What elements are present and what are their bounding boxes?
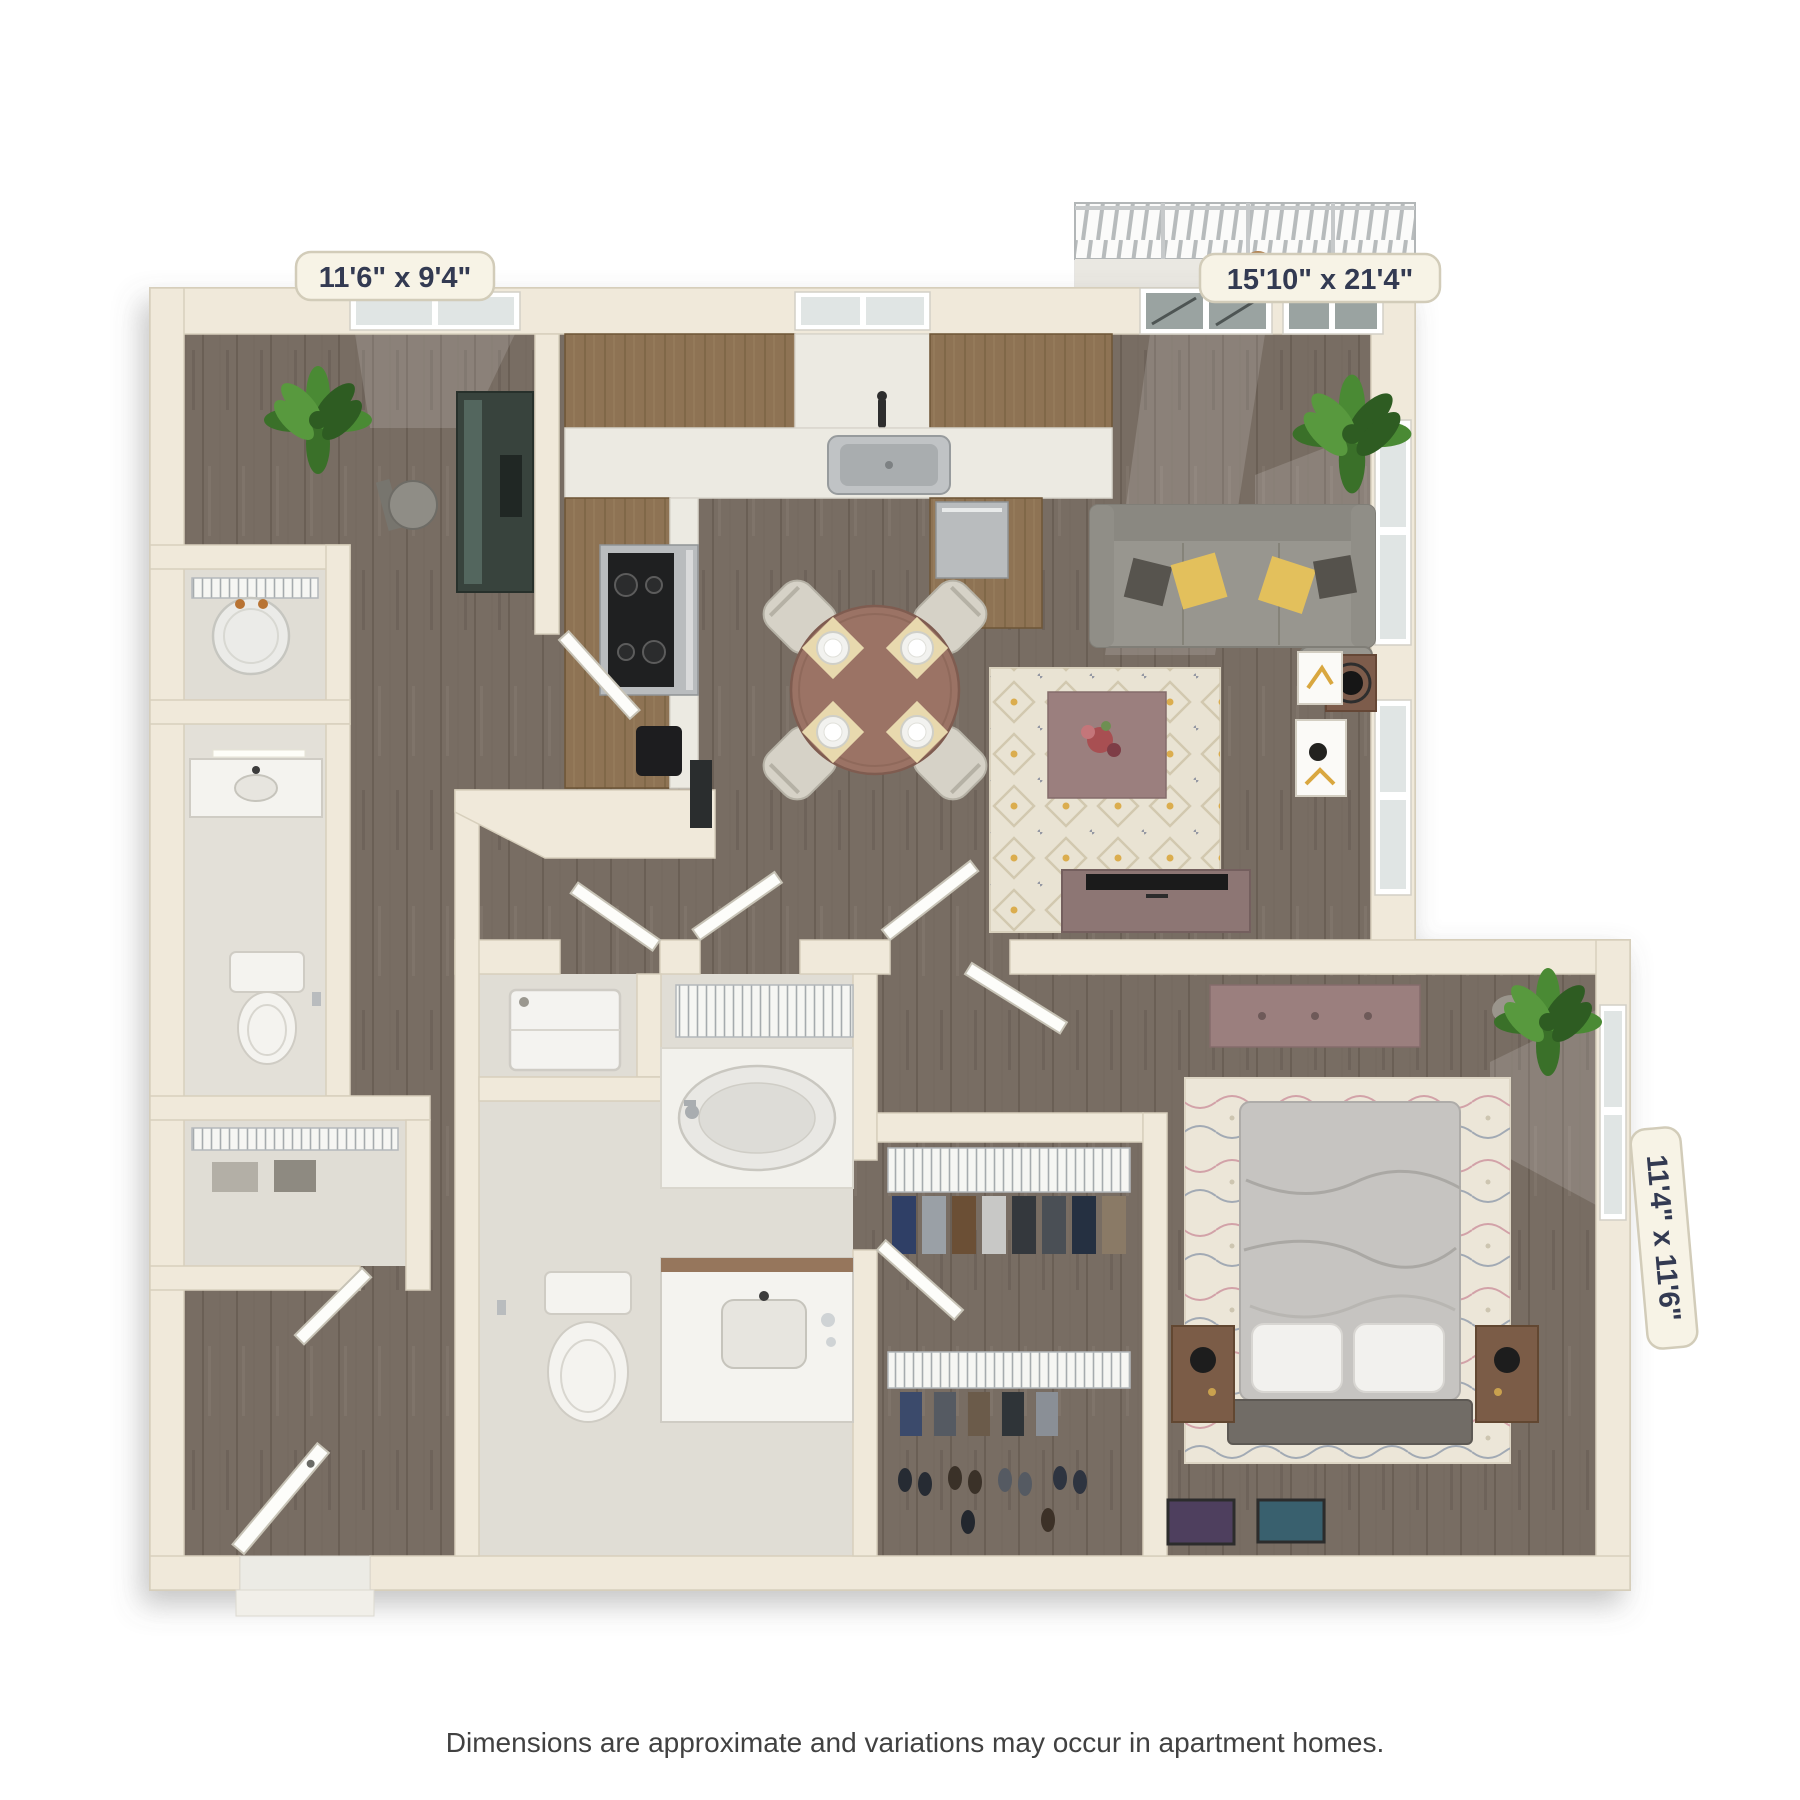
- oven-handle: [686, 550, 693, 690]
- balcony-railing: [1075, 203, 1415, 259]
- bedroom-window: [1600, 1005, 1626, 1220]
- exterior-wall-left: [150, 288, 184, 1590]
- bath2-toilet-tank: [230, 952, 304, 992]
- floor-plan-image: 11'6" x 9'4" 15'10" x 21'4" 11'4" x 11'6…: [0, 0, 1800, 1800]
- bath2-sink: [235, 775, 277, 801]
- exterior-wall-bottom: [150, 1556, 240, 1590]
- copper-pipe: [235, 599, 245, 609]
- dresser-knob: [1364, 1012, 1372, 1020]
- range-stove: [600, 545, 698, 695]
- kitchen-window: [795, 292, 930, 330]
- linen-wire-shelf: [676, 985, 853, 1037]
- wall-living-bedroom: [1010, 940, 1630, 974]
- dishwasher: [936, 502, 1008, 578]
- wall-bath-closet-divider: [853, 1250, 877, 1556]
- office-chair: [389, 481, 437, 529]
- wall-bath-top: [660, 940, 700, 974]
- floor-frame: [1168, 1500, 1234, 1544]
- sink-faucet-head: [877, 391, 887, 401]
- bath2-faucet: [252, 766, 260, 774]
- wall-closet-top: [877, 1113, 1143, 1142]
- living-dimensions-text: 15'10" x 21'4": [1227, 264, 1413, 296]
- flower-leaves: [1101, 721, 1111, 731]
- vanity-faucet: [759, 1291, 769, 1301]
- soap-dish: [826, 1337, 836, 1347]
- lamp-accent: [1208, 1388, 1216, 1396]
- wall-office-bottom: [150, 545, 350, 569]
- wall-utility-bottom: [150, 700, 350, 724]
- nightstand-lamp: [1190, 1347, 1216, 1373]
- hallcloset-wire-shelf: [192, 1128, 398, 1150]
- floor-frame: [1258, 1500, 1324, 1542]
- bathtub: [661, 1048, 853, 1188]
- sink-sill: [795, 334, 930, 428]
- desk-monitor: [500, 455, 522, 517]
- bed-pillow: [1354, 1324, 1444, 1392]
- wall-bath-left: [455, 790, 479, 1556]
- toilet-bowl: [548, 1322, 628, 1422]
- vanity-backsplash: [661, 1258, 853, 1272]
- office-dimensions-text: 11'6" x 9'4": [319, 262, 472, 294]
- dresser-knob: [1311, 1012, 1319, 1020]
- storage-box: [274, 1160, 316, 1192]
- storage-box: [212, 1162, 258, 1192]
- wall-washer-closet-right: [637, 974, 661, 1077]
- dining-area: [756, 573, 994, 807]
- dimension-label-bedroom: 11'4" x 11'6": [1630, 1126, 1699, 1350]
- coffee-maker: [636, 726, 682, 776]
- dimension-label-living: 15'10" x 21'4": [1200, 254, 1440, 302]
- vanity-light-bar: [213, 750, 305, 757]
- living-window-1: [1375, 420, 1411, 645]
- wall-office-right: [535, 334, 559, 634]
- vanity-sink: [722, 1300, 806, 1368]
- upper-cabinets-left: [565, 334, 795, 428]
- headboard: [1228, 1400, 1472, 1444]
- dresser-knob: [1258, 1012, 1266, 1020]
- copper-pipe: [258, 599, 268, 609]
- flowers: [1081, 725, 1095, 739]
- exterior-wall-bottom: [370, 1556, 1630, 1590]
- dimension-label-office: 11'6" x 9'4": [296, 252, 494, 300]
- wall-art: [1296, 652, 1346, 796]
- wall-bathroom2-right: [326, 724, 350, 1096]
- soap-dish: [821, 1313, 835, 1327]
- sink-drain: [885, 461, 893, 469]
- vanity: [661, 1258, 853, 1422]
- upper-cabinets-right: [930, 334, 1112, 428]
- toilet-tank: [545, 1272, 631, 1314]
- counter-end-appliance: [690, 760, 712, 828]
- nightstand-right: [1476, 1326, 1538, 1422]
- wall-utility-right: [326, 545, 350, 724]
- wall-washer-closet-bottom: [479, 1077, 661, 1101]
- bath2-toilet-bowl: [238, 992, 296, 1064]
- disclaimer-text: Dimensions are approximate and variation…: [446, 1727, 1384, 1758]
- nightstand-lamp: [1494, 1347, 1520, 1373]
- wall-bathroom2-bottom: [150, 1096, 430, 1120]
- wall-hallcloset-bottom: [150, 1266, 360, 1290]
- sink-faucet: [878, 398, 886, 428]
- desk-glass-top: [464, 400, 482, 584]
- paper-holder: [497, 1300, 506, 1315]
- paper-holder: [312, 992, 321, 1006]
- throw-pillow-dark: [1313, 555, 1357, 599]
- utility-wire-shelf: [192, 578, 318, 598]
- washer-closet: [510, 990, 620, 1070]
- nightstand-left: [1172, 1326, 1234, 1422]
- closet-rod-top: [888, 1148, 1130, 1192]
- lamp-accent: [1494, 1388, 1502, 1396]
- tub-faucet: [685, 1105, 699, 1119]
- entry-step: [236, 1590, 374, 1616]
- bed-pillow: [1252, 1324, 1342, 1392]
- wall-hallcloset-right: [406, 1120, 430, 1290]
- entry-threshold: [240, 1556, 370, 1590]
- bed: [1228, 1102, 1472, 1444]
- flowers: [1107, 743, 1121, 757]
- wall-bath-closet-divider: [853, 974, 877, 1160]
- tub-spout: [684, 1100, 696, 1106]
- dining-table: [791, 606, 959, 774]
- wall-bedroom-left: [1143, 1113, 1167, 1556]
- washer-dial: [519, 997, 529, 1007]
- tv-console-group: [1062, 870, 1250, 932]
- living-window-2: [1375, 700, 1411, 895]
- tv: [1086, 874, 1228, 890]
- closet-rod-lower: [888, 1352, 1130, 1388]
- floor-plan-canvas: 11'6" x 9'4" 15'10" x 21'4" 11'4" x 11'6…: [0, 0, 1800, 1800]
- wall-bath-top: [800, 940, 890, 974]
